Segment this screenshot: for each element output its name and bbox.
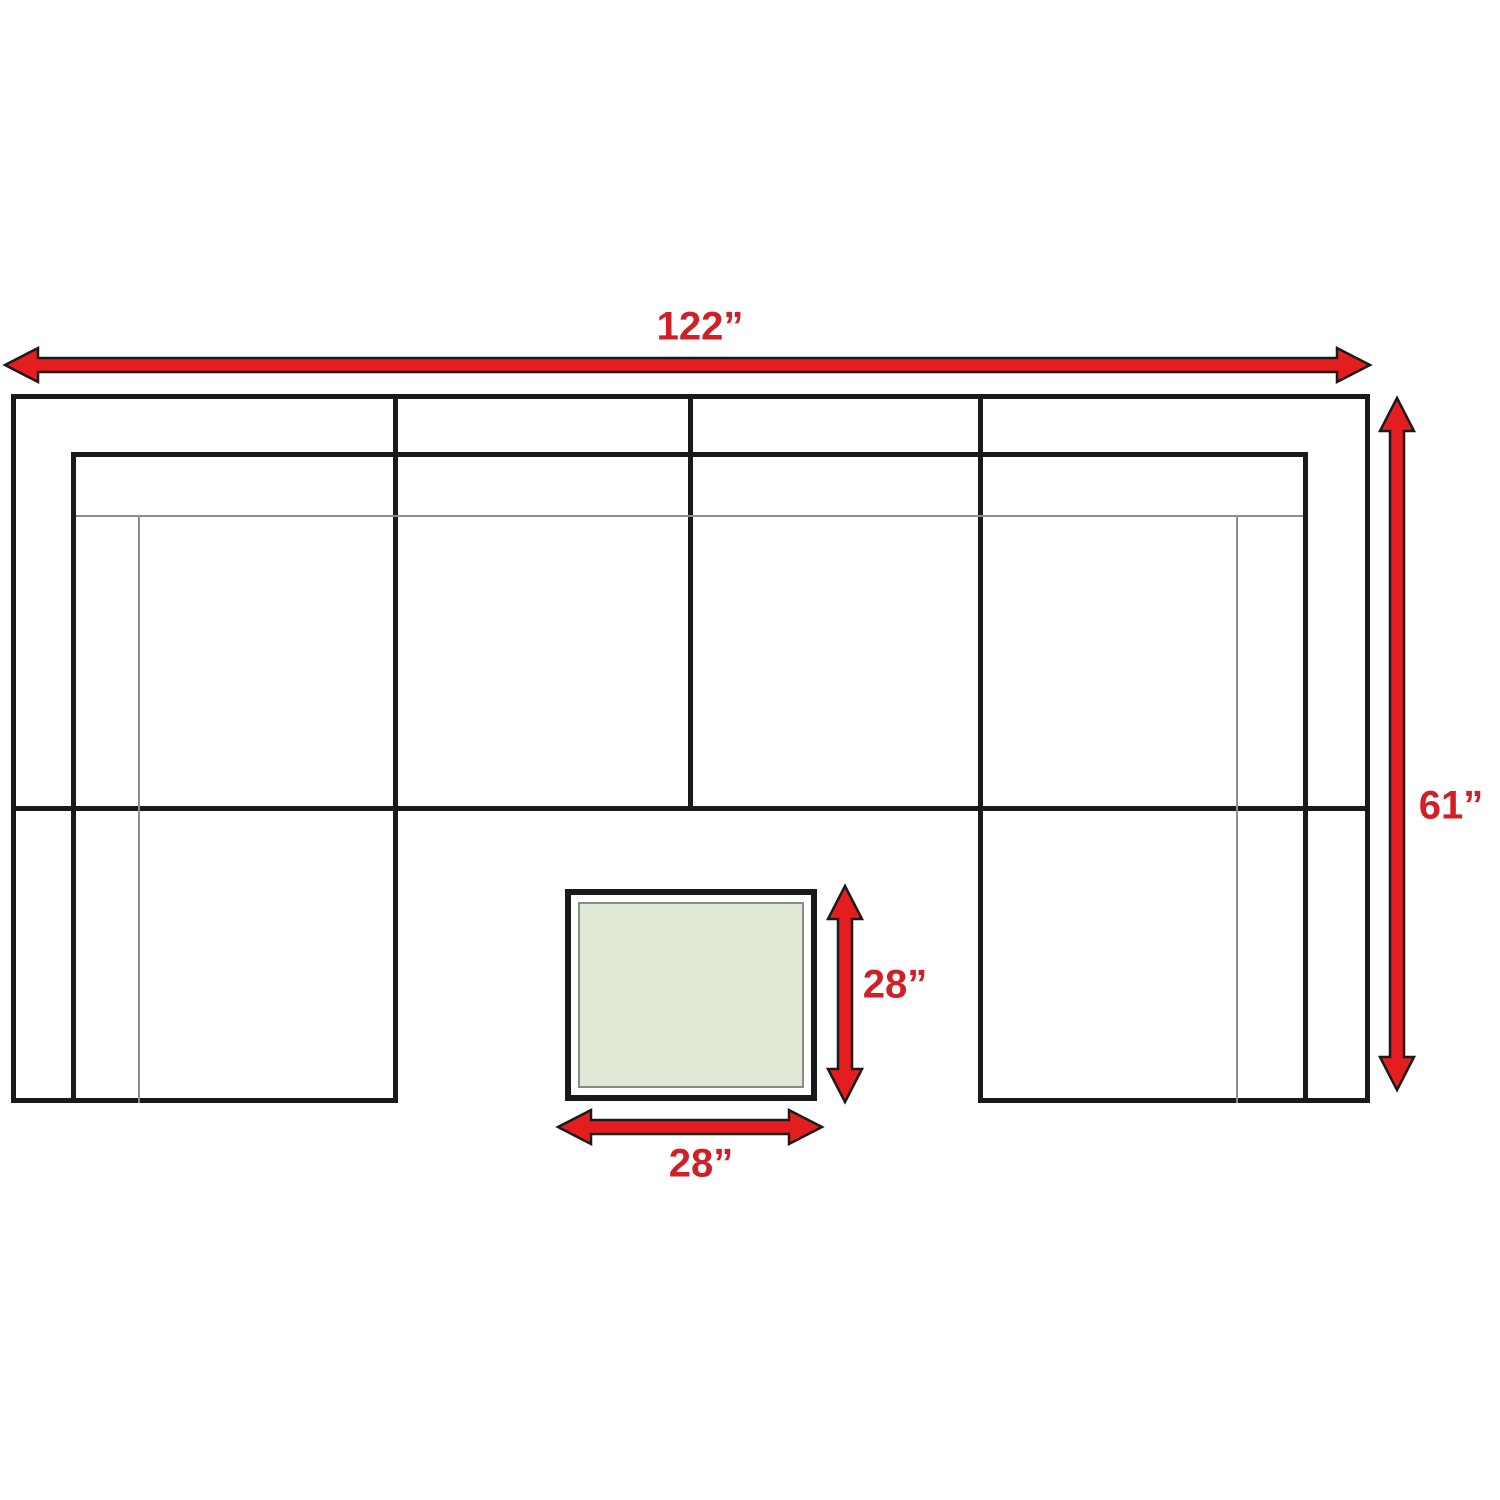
armrest-inner-line-left [71, 452, 76, 1103]
sofa-width-arrow [3, 345, 1372, 385]
section-divider-right [978, 394, 983, 1103]
cushion-line-back [76, 515, 1303, 517]
sofa-depth-label: 61” [1419, 784, 1484, 829]
seat-front-line [11, 806, 1370, 811]
cushion-line-right [1236, 515, 1238, 1103]
sofa-outline-right [1365, 394, 1370, 1103]
section-divider-left [393, 394, 398, 1103]
backrest-inner-line [71, 452, 1308, 457]
table-height-label: 28” [863, 963, 928, 1008]
sofa-depth-arrow [1377, 396, 1417, 1092]
table-width-arrow [556, 1107, 824, 1147]
table-height-arrow [825, 884, 865, 1104]
side-table [565, 889, 817, 1101]
table-width-label: 28” [669, 1142, 734, 1187]
sofa-outline-bottom-right [978, 1098, 1370, 1103]
sofa-width-label: 122” [657, 305, 744, 350]
armrest-inner-line-right [1303, 452, 1308, 1103]
dimension-diagram: 122” 61” 28” 28” [0, 0, 1500, 1500]
sofa-outline-left [11, 394, 16, 1103]
sofa-outline-bottom-left [11, 1098, 398, 1103]
cushion-line-left [138, 515, 140, 1103]
side-table-top [578, 902, 804, 1088]
